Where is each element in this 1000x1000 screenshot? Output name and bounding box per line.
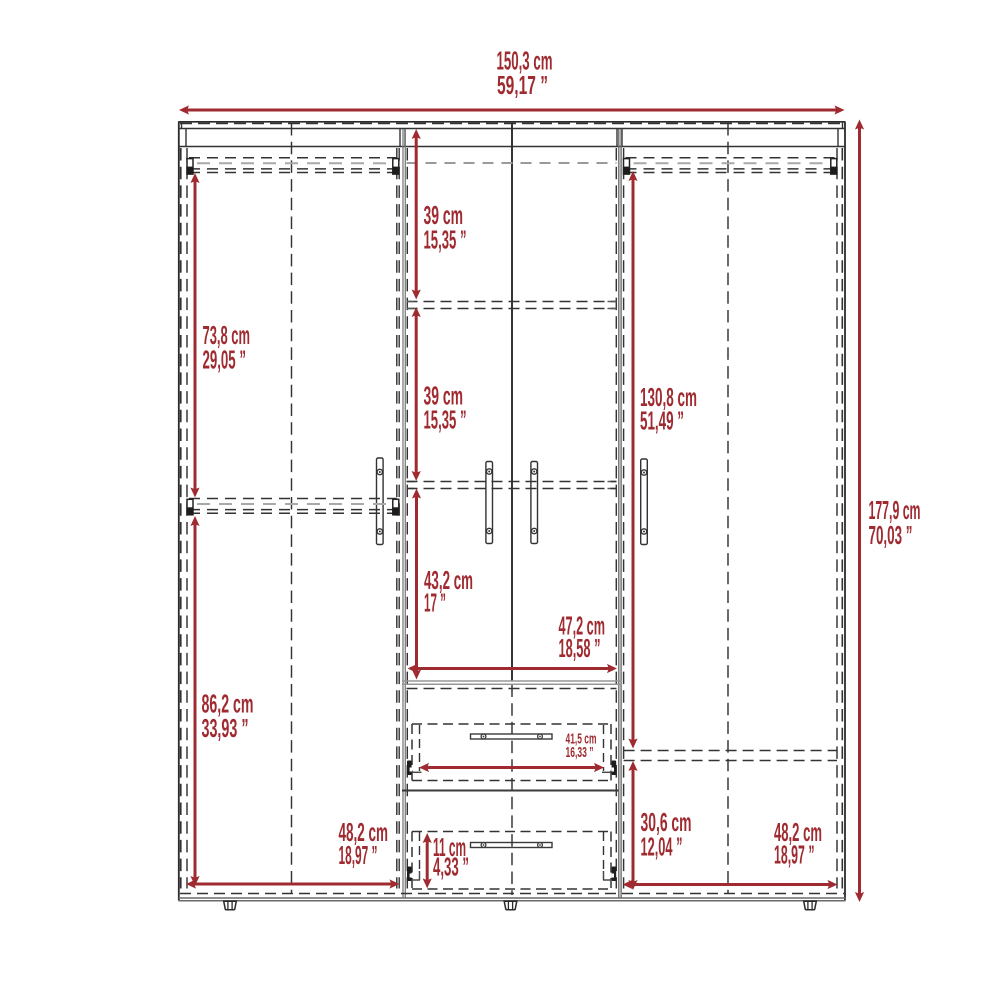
svg-text:59,17 ”: 59,17 ” — [497, 70, 548, 100]
svg-text:33,93 ”: 33,93 ” — [202, 713, 249, 743]
svg-text:15,35 ”: 15,35 ” — [424, 225, 467, 255]
svg-text:29,05 ”: 29,05 ” — [203, 345, 247, 375]
svg-text:17 ”: 17 ” — [424, 588, 446, 618]
svg-text:12,04 ”: 12,04 ” — [641, 832, 683, 862]
svg-text:51,49 ”: 51,49 ” — [640, 406, 684, 436]
svg-text:4,33 ”: 4,33 ” — [433, 852, 469, 882]
svg-text:18,97 ”: 18,97 ” — [774, 840, 815, 870]
svg-text:18,97 ”: 18,97 ” — [339, 840, 378, 870]
svg-text:18,58 ”: 18,58 ” — [559, 633, 601, 663]
svg-text:15,35 ”: 15,35 ” — [424, 405, 467, 435]
svg-text:70,03 ”: 70,03 ” — [869, 520, 913, 550]
svg-text:16,33 ”: 16,33 ” — [566, 744, 594, 761]
